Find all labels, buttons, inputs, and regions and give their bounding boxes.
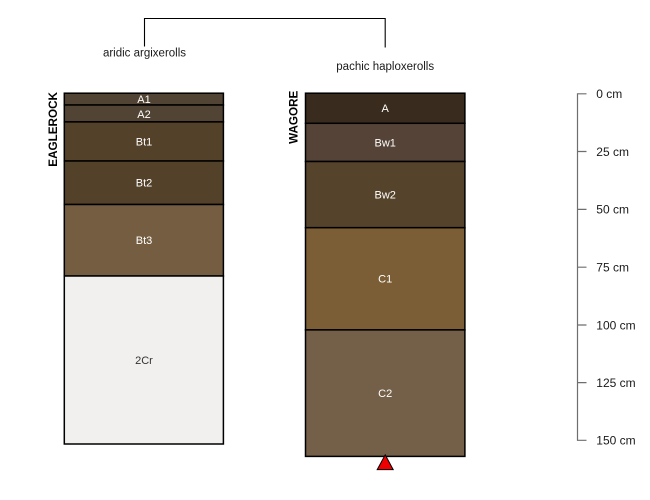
- svg-text:A2: A2: [137, 109, 150, 121]
- svg-text:A: A: [382, 103, 390, 115]
- svg-text:Bt2: Bt2: [136, 178, 153, 190]
- svg-text:WAGORE: WAGORE: [287, 90, 300, 143]
- svg-text:50 cm: 50 cm: [596, 203, 629, 217]
- svg-text:C1: C1: [378, 274, 392, 286]
- svg-text:150 cm: 150 cm: [596, 434, 635, 448]
- svg-text:Bt3: Bt3: [136, 235, 153, 247]
- svg-text:100 cm: 100 cm: [596, 318, 635, 332]
- svg-text:125 cm: 125 cm: [596, 376, 635, 390]
- svg-text:aridic argixerolls: aridic argixerolls: [103, 48, 186, 60]
- svg-text:25 cm: 25 cm: [596, 145, 629, 159]
- svg-text:0 cm: 0 cm: [596, 87, 622, 101]
- svg-text:Bw2: Bw2: [374, 190, 395, 202]
- svg-text:C2: C2: [378, 388, 392, 400]
- svg-text:Bw1: Bw1: [374, 137, 395, 149]
- svg-text:75 cm: 75 cm: [596, 261, 629, 275]
- svg-text:2Cr: 2Cr: [135, 355, 153, 367]
- svg-text:Bt1: Bt1: [136, 136, 153, 148]
- svg-text:pachic haploxerolls: pachic haploxerolls: [336, 61, 434, 73]
- svg-text:EAGLEROCK: EAGLEROCK: [47, 91, 60, 166]
